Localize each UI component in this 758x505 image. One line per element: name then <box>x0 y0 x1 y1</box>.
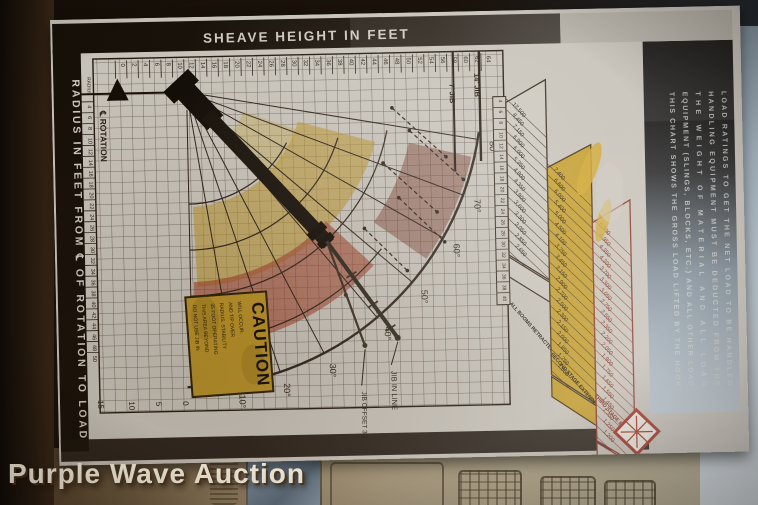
top-axis-tick: 24 <box>256 61 262 68</box>
top-axis-tick: 52 <box>416 57 422 64</box>
bottom-scale-label: 10 <box>127 401 136 411</box>
top-axis-tick: 26 <box>267 60 273 67</box>
left-axis-tick: 40 <box>90 301 96 307</box>
top-axis-tick: 10 <box>176 62 182 69</box>
left-axis-tick: 14 <box>87 160 93 166</box>
top-axis-tick: 12 <box>187 62 193 69</box>
left-axis-tick: 50 <box>91 356 97 362</box>
left-axis-tick: 8 <box>86 127 92 130</box>
left-axis-tick: 46 <box>91 334 97 340</box>
left-axis-tick: 12 <box>87 149 93 155</box>
top-axis-tick: 32 <box>302 60 308 67</box>
top-axis-tick: 18 <box>222 61 228 68</box>
table-radius-value: 14 <box>498 154 504 160</box>
photo-left-shadow <box>0 0 54 505</box>
placard-artwork: SHEAVE HEIGHT IN FEET RADIUS IN FEET FRO… <box>50 6 749 466</box>
table-radius-value: 10 <box>497 132 503 138</box>
top-axis-tick: 44 <box>370 58 376 65</box>
table-radius-value: 4 <box>497 100 503 103</box>
table-radius-value: 28 <box>500 230 506 236</box>
table-radius-value: 36 <box>500 274 506 280</box>
top-axis-tick: 20 <box>233 61 239 68</box>
auction-watermark: Purple Wave Auction <box>8 458 305 490</box>
table-radius-value: 8 <box>497 121 503 124</box>
table-radius-value: 40 <box>501 296 507 302</box>
left-axis-tick: 20 <box>88 192 94 198</box>
left-axis-tick: 44 <box>90 323 96 329</box>
left-axis-tick: 32 <box>89 258 95 264</box>
table-radius-value: 38 <box>501 285 507 291</box>
lower-placard-table-3 <box>604 480 656 505</box>
top-axis-tick: 22 <box>245 61 251 68</box>
lower-placard-table-2 <box>540 476 596 505</box>
top-axis-tick: 16 <box>210 62 216 69</box>
table-radius-value: 22 <box>499 198 505 204</box>
left-axis-tick: 42 <box>90 312 96 318</box>
left-axis-tick: 28 <box>89 236 95 242</box>
bottom-scale-label: 15 <box>96 400 105 410</box>
top-axis-tick: 48 <box>393 58 399 65</box>
left-axis-header: RADIUS <box>85 77 91 95</box>
top-axis-tick: 46 <box>382 58 388 65</box>
top-axis-tick: 56 <box>439 57 445 64</box>
top-axis-tick: 14 <box>199 62 205 69</box>
boom-angle-label: 20° <box>282 383 292 397</box>
table-radius-value: 18 <box>498 176 504 182</box>
top-axis-tick: 42 <box>359 58 365 65</box>
left-axis-tick: 16 <box>87 171 93 177</box>
jib-14ft-label: 14' JIB <box>472 73 482 98</box>
table-radius-value: 24 <box>499 209 505 215</box>
boom-angle-label: 60° <box>451 244 461 258</box>
table-radius-value: 32 <box>500 252 506 258</box>
left-axis-tick: 30 <box>89 247 95 253</box>
top-axis-tick: 38 <box>336 59 342 66</box>
boom-angle-label: 50° <box>419 290 429 304</box>
left-axis-tick: 36 <box>89 280 95 286</box>
glare-right-bar <box>643 40 735 122</box>
left-axis-tick: 10 <box>86 138 92 144</box>
left-axis-tick: 26 <box>88 225 94 231</box>
table-radius-value: 16 <box>498 165 504 171</box>
rotation-label: ℄ ROTATION <box>98 110 109 162</box>
boom-angle-label: 70° <box>472 199 482 213</box>
top-axis-tick: 40 <box>347 59 353 66</box>
top-axis-tick: 60 <box>462 56 468 63</box>
boom-angle-label: 10° <box>237 394 247 408</box>
left-axis-tick: 48 <box>91 345 97 351</box>
table-radius-value: 12 <box>498 143 504 149</box>
boom-angle-label: 30° <box>328 364 338 378</box>
left-axis-tick: 18 <box>87 181 93 187</box>
photo-of-crane-load-chart-placard: SHEAVE HEIGHT IN FEET RADIUS IN FEET FRO… <box>0 0 758 505</box>
top-axis-tick: 54 <box>427 57 433 64</box>
top-axis-tick: 28 <box>279 60 285 67</box>
jib-in-line-label: JIB IN LINE <box>389 371 399 410</box>
left-axis-tick: 34 <box>89 269 95 275</box>
top-axis-tick: 30 <box>290 60 296 67</box>
lower-placard-diagram-box <box>330 462 444 505</box>
jib-offset-label: JIB OFFSET 30° <box>360 391 369 440</box>
left-axis-tick: 4 <box>86 105 92 108</box>
table-radius-value: 26 <box>499 219 505 225</box>
left-axis-tick: 6 <box>86 116 92 119</box>
top-axis-tick: 36 <box>325 59 331 66</box>
jib-7ft-label: 7' JIB <box>447 84 456 104</box>
caution-sticker: CAUTION DO NOT USE JIB INTHIS AREA BEYON… <box>185 291 273 397</box>
table-radius-value: 34 <box>500 263 506 269</box>
table-radius-value: 30 <box>500 241 506 247</box>
left-axis-tick: 22 <box>88 203 94 209</box>
top-right-margin <box>560 10 733 44</box>
left-axis-tick: 24 <box>88 214 94 220</box>
top-axis-tick: 34 <box>313 59 319 66</box>
table-radius-value: 20 <box>499 187 505 193</box>
table-radius-value: 6 <box>497 110 503 113</box>
table-column-band <box>505 80 549 281</box>
glare-top-bar <box>350 13 561 47</box>
lower-placard-table-1 <box>458 470 522 505</box>
top-axis-tick: 64 <box>485 56 491 63</box>
left-axis-tick: 38 <box>90 290 96 296</box>
load-chart-placard: SHEAVE HEIGHT IN FEET RADIUS IN FEET FRO… <box>50 6 749 466</box>
bottom-scale-label: 0 <box>181 401 190 406</box>
bottom-scale-label: 5 <box>154 402 163 407</box>
top-axis-tick: 50 <box>405 57 411 64</box>
